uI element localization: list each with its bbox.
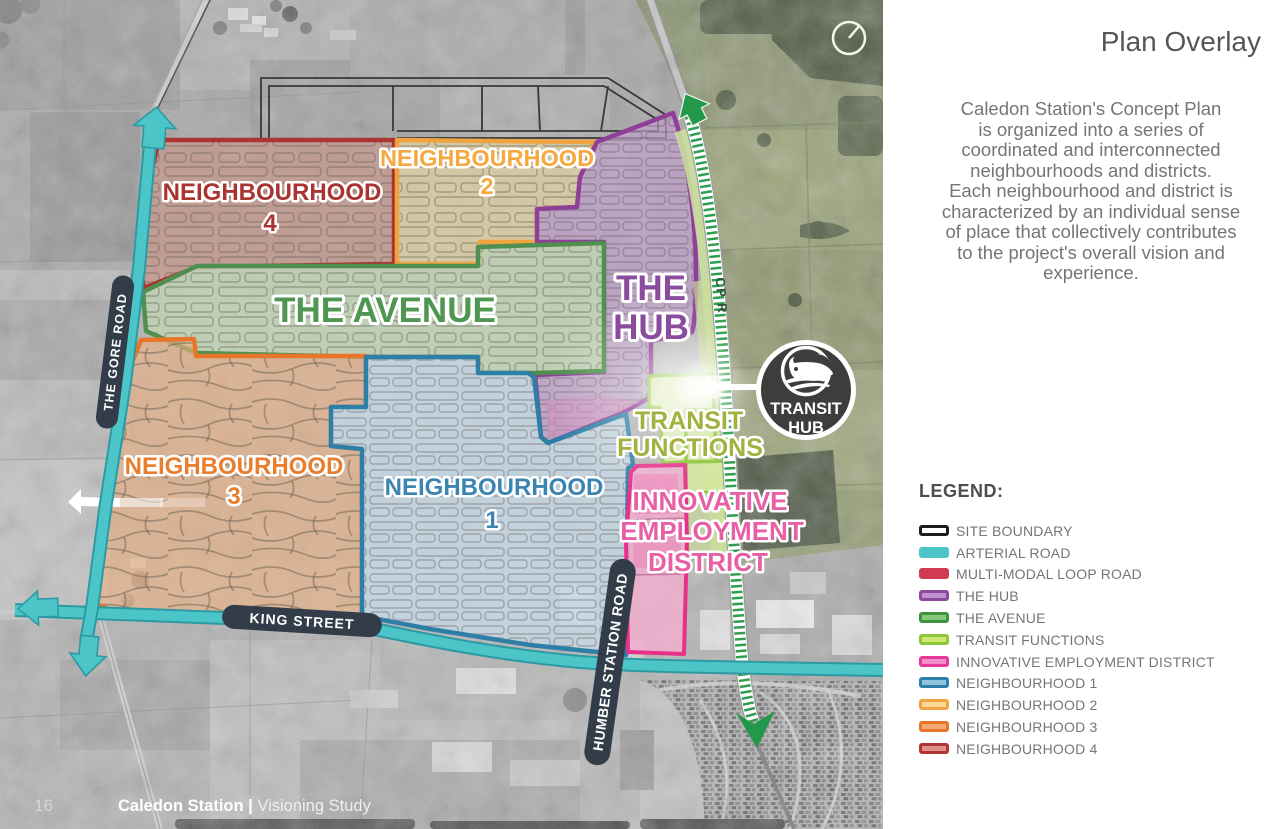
svg-text:FUNCTIONS: FUNCTIONS: [617, 434, 763, 462]
svg-text:INNOVATIVE: INNOVATIVE: [632, 486, 787, 516]
svg-text:NEIGHBOURHOOD: NEIGHBOURHOOD: [380, 145, 594, 171]
svg-text:NEIGHBOURHOOD: NEIGHBOURHOOD: [163, 179, 382, 206]
svg-text:EMPLOYMENT: EMPLOYMENT: [620, 516, 804, 546]
svg-text:2: 2: [480, 173, 493, 199]
svg-text:TRANSIT: TRANSIT: [770, 400, 842, 418]
svg-text:TRANSIT: TRANSIT: [635, 407, 743, 435]
svg-text:HUB: HUB: [613, 308, 689, 347]
svg-text:1: 1: [485, 507, 498, 534]
svg-text:CP R: CP R: [713, 277, 731, 315]
svg-text:THE AVENUE: THE AVENUE: [274, 291, 496, 330]
svg-text:4: 4: [263, 210, 277, 237]
svg-text:16: 16: [34, 796, 53, 815]
svg-text:HUB: HUB: [788, 419, 824, 437]
svg-text:DISTRICT: DISTRICT: [648, 547, 768, 577]
svg-text:NEIGHBOURHOOD: NEIGHBOURHOOD: [385, 474, 604, 501]
svg-text:3: 3: [227, 483, 240, 510]
svg-text:Caledon Station | Visioning St: Caledon Station | Visioning Study: [118, 797, 372, 815]
svg-text:THE: THE: [616, 269, 686, 308]
svg-text:NEIGHBOURHOOD: NEIGHBOURHOOD: [125, 453, 344, 480]
